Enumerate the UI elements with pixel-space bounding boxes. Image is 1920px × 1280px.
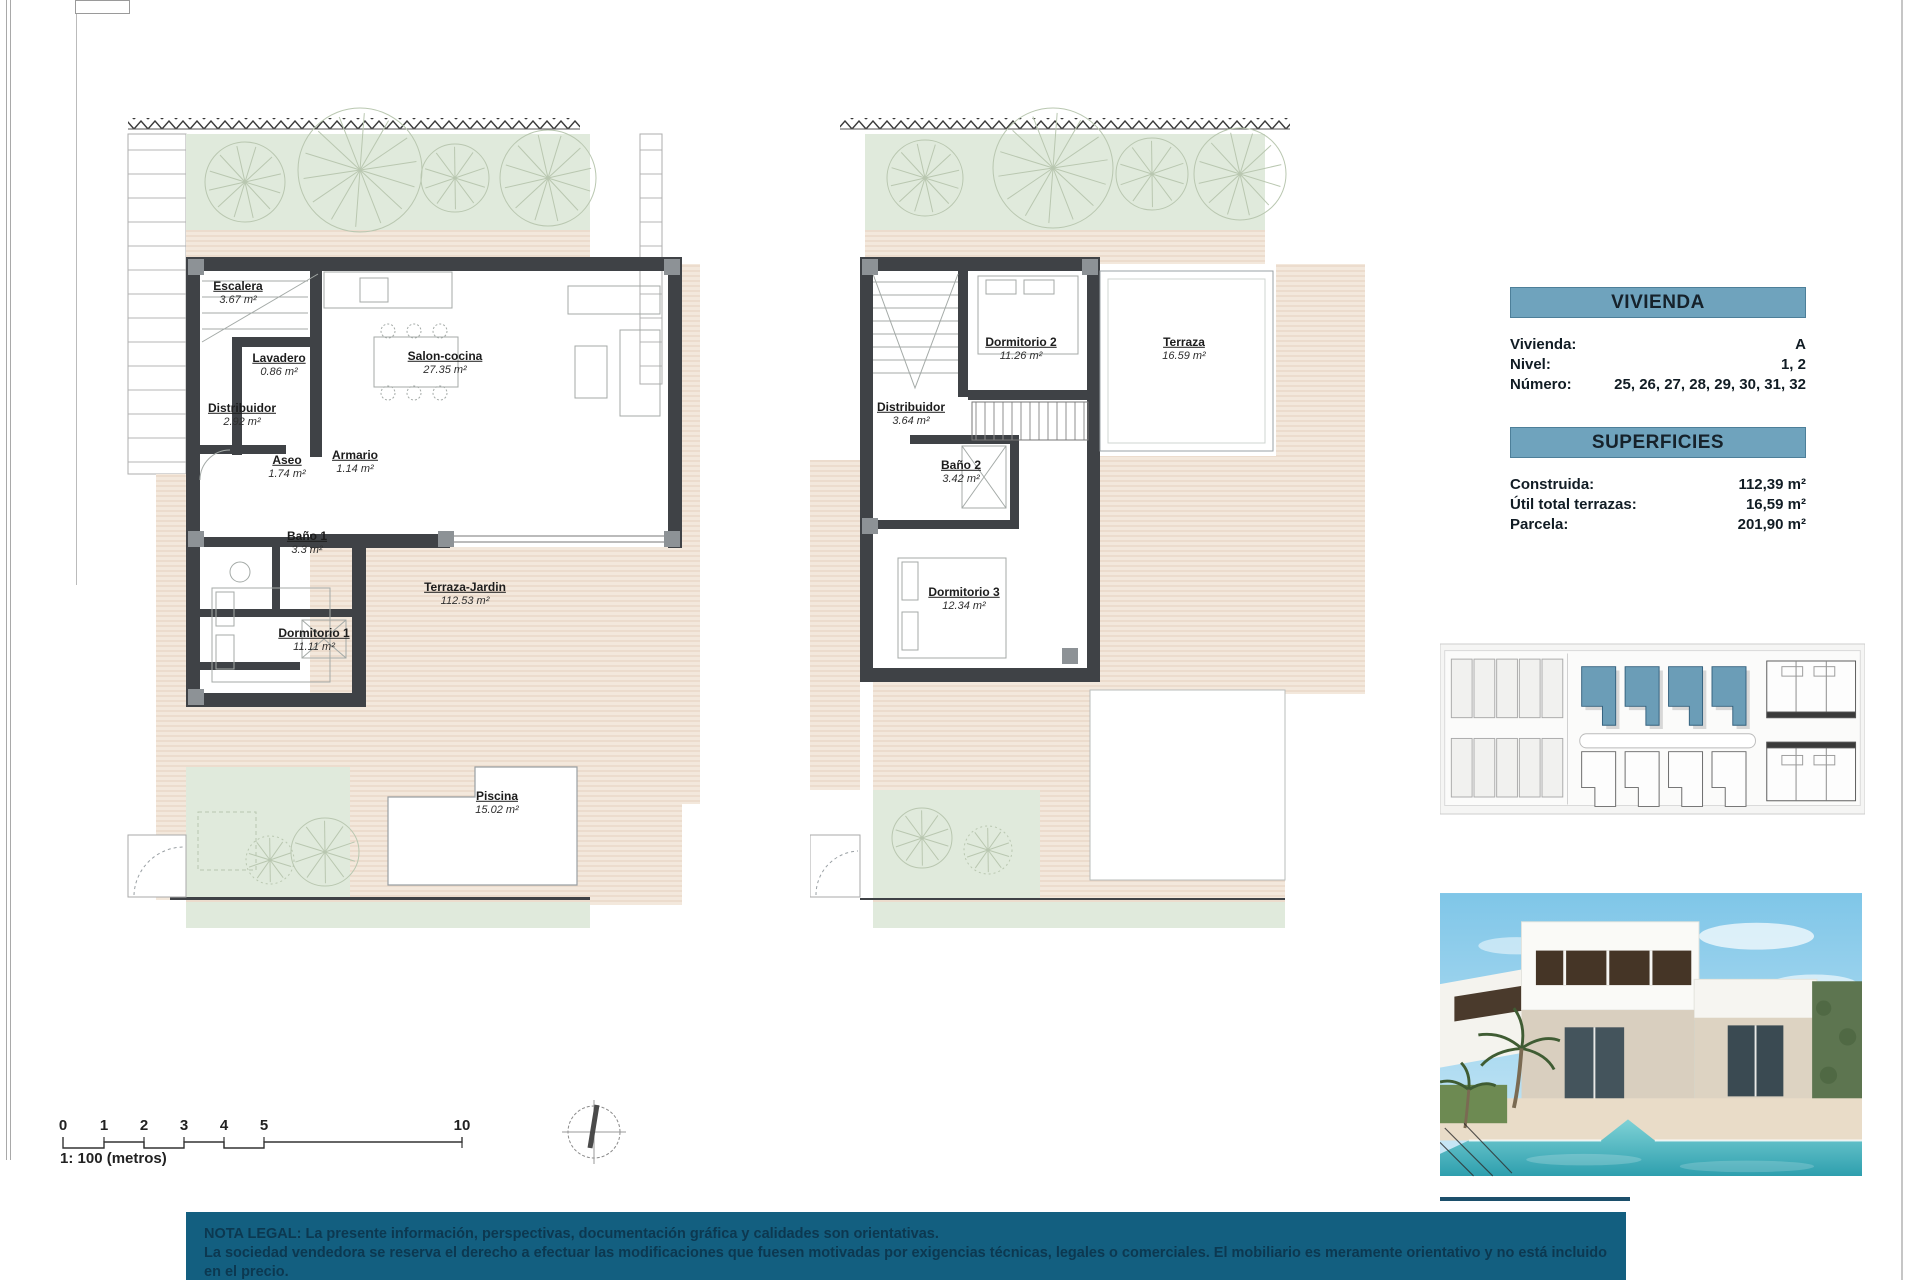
- room-name: Escalera: [213, 280, 262, 294]
- room-label: Distribuidor3.64 m²: [877, 401, 945, 427]
- room-area: 112.53 m²: [424, 595, 506, 608]
- ground-floor-drawing: [120, 90, 700, 960]
- scale-tick: 2: [140, 1117, 148, 1134]
- room-name: Salon-cocina: [408, 350, 483, 364]
- field-label: Nivel:: [1510, 355, 1551, 375]
- scale-bar: [50, 1115, 570, 1155]
- field-label: Parcela:: [1510, 515, 1568, 535]
- scale-tick: 5: [260, 1117, 268, 1134]
- field-value: 112,39 m²: [1738, 475, 1806, 495]
- plan-sheet: Escalera3.67 m²Lavadero0.86 m²Salon-coci…: [0, 0, 1920, 1280]
- neighbor-sheet-line: [76, 0, 77, 585]
- room-area: 16.59 m²: [1162, 350, 1205, 363]
- room-area: 11.26 m²: [985, 350, 1056, 363]
- superficies-rows: Construida:112,39 m²Útil total terrazas:…: [1510, 475, 1806, 535]
- room-area: 1.14 m²: [332, 463, 378, 476]
- legal-line-1: NOTA LEGAL: La presente información, per…: [204, 1225, 1608, 1244]
- superficies-panel: SUPERFICIES Construida:112,39 m²Útil tot…: [1510, 427, 1806, 535]
- room-name: Distribuidor: [208, 402, 276, 416]
- field-value: 1, 2: [1781, 355, 1806, 375]
- scale-label: 1: 100 (metros): [60, 1150, 167, 1167]
- panel-row: Nivel:1, 2: [1510, 355, 1806, 375]
- room-label: Distribuidor2.92 m²: [208, 402, 276, 428]
- legal-note-bar: NOTA LEGAL: La presente información, per…: [186, 1212, 1626, 1280]
- room-name: Dormitorio 2: [985, 336, 1056, 350]
- room-area: 0.86 m²: [252, 366, 305, 379]
- room-label: Lavadero0.86 m²: [252, 352, 305, 378]
- vivienda-panel-title: VIVIENDA: [1510, 287, 1806, 318]
- scale-tick: 4: [220, 1117, 228, 1134]
- room-label: Aseo1.74 m²: [268, 454, 305, 480]
- room-name: Terraza-Jardin: [424, 581, 506, 595]
- room-area: 2.92 m²: [208, 416, 276, 429]
- room-name: Baño 1: [287, 530, 327, 544]
- field-label: Construida:: [1510, 475, 1594, 495]
- field-label: Útil total terrazas:: [1510, 495, 1637, 515]
- room-area: 11.11 m²: [278, 641, 349, 654]
- room-name: Distribuidor: [877, 401, 945, 415]
- room-label: Dormitorio 211.26 m²: [985, 336, 1056, 362]
- scale-tick: 10: [454, 1117, 471, 1134]
- room-label: Baño 13.3 m²: [287, 530, 327, 556]
- room-label: Armario1.14 m²: [332, 449, 378, 475]
- room-label: Dormitorio 111.11 m²: [278, 627, 349, 653]
- field-value: A: [1795, 335, 1806, 355]
- scale-tick: 0: [59, 1117, 67, 1134]
- vivienda-panel: VIVIENDA Vivienda:ANivel:1, 2Número:25, …: [1510, 287, 1806, 395]
- upper-floor-plan: Dormitorio 211.26 m²Terraza16.59 m²Distr…: [810, 90, 1390, 960]
- room-area: 12.34 m²: [928, 600, 999, 613]
- room-area: 3.3 m²: [287, 544, 327, 557]
- page-edge-line: [10, 0, 11, 1160]
- site-plan-thumbnail: [1440, 640, 1865, 818]
- room-name: Baño 2: [941, 459, 981, 473]
- room-name: Aseo: [268, 454, 305, 468]
- room-label: Terraza16.59 m²: [1162, 336, 1205, 362]
- vivienda-rows: Vivienda:ANivel:1, 2Número:25, 26, 27, 2…: [1510, 335, 1806, 395]
- panel-row: Útil total terrazas:16,59 m²: [1510, 495, 1806, 515]
- superficies-panel-title: SUPERFICIES: [1510, 427, 1806, 458]
- panel-row: Parcela:201,90 m²: [1510, 515, 1806, 535]
- room-name: Piscina: [475, 790, 518, 804]
- north-compass-icon: [558, 1096, 630, 1168]
- room-label: Escalera3.67 m²: [213, 280, 262, 306]
- field-value: 201,90 m²: [1738, 515, 1806, 535]
- legal-line-2: La sociedad vendedora se reserva el dere…: [204, 1244, 1608, 1280]
- title-block-fragment: [75, 0, 130, 14]
- room-area: 3.64 m²: [877, 415, 945, 428]
- field-value: 25, 26, 27, 28, 29, 30, 31, 32: [1614, 375, 1806, 395]
- panel-row: Construida:112,39 m²: [1510, 475, 1806, 495]
- room-area: 3.67 m²: [213, 294, 262, 307]
- room-name: Dormitorio 3: [928, 586, 999, 600]
- panel-row: Número:25, 26, 27, 28, 29, 30, 31, 32: [1510, 375, 1806, 395]
- room-area: 27.35 m²: [408, 364, 483, 377]
- scale-tick: 3: [180, 1117, 188, 1134]
- room-label: Baño 23.42 m²: [941, 459, 981, 485]
- upper-floor-drawing: [810, 90, 1390, 960]
- divider-accent: [1440, 1197, 1630, 1201]
- room-label: Terraza-Jardin112.53 m²: [424, 581, 506, 607]
- room-name: Lavadero: [252, 352, 305, 366]
- panel-row: Vivienda:A: [1510, 335, 1806, 355]
- room-name: Dormitorio 1: [278, 627, 349, 641]
- room-name: Terraza: [1162, 336, 1205, 350]
- villa-render-image: [1440, 892, 1862, 1177]
- room-label: Salon-cocina27.35 m²: [408, 350, 483, 376]
- page-edge-line: [1901, 0, 1903, 1280]
- room-area: 15.02 m²: [475, 804, 518, 817]
- field-label: Vivienda:: [1510, 335, 1576, 355]
- room-label: Piscina15.02 m²: [475, 790, 518, 816]
- room-area: 1.74 m²: [268, 468, 305, 481]
- scale-tick: 1: [100, 1117, 108, 1134]
- room-name: Armario: [332, 449, 378, 463]
- ground-floor-plan: Escalera3.67 m²Lavadero0.86 m²Salon-coci…: [120, 90, 700, 960]
- field-label: Número:: [1510, 375, 1572, 395]
- room-area: 3.42 m²: [941, 473, 981, 486]
- field-value: 16,59 m²: [1746, 495, 1806, 515]
- room-label: Dormitorio 312.34 m²: [928, 586, 999, 612]
- page-edge-line: [6, 0, 7, 1160]
